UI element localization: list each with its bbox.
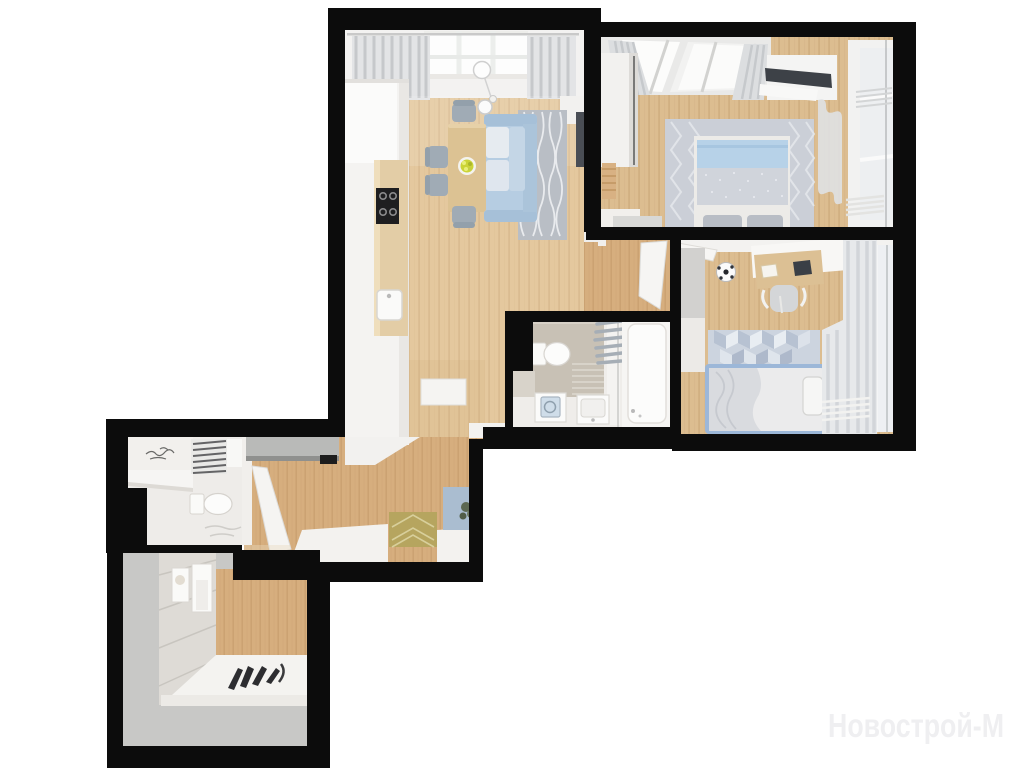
svg-text:Новострой-М: Новострой-М [828,707,1004,744]
